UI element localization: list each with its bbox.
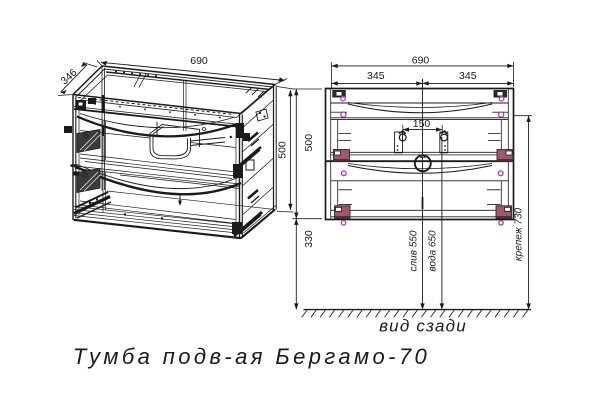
svg-text:345: 345 xyxy=(367,70,385,82)
svg-text:150: 150 xyxy=(413,118,431,130)
svg-text:500: 500 xyxy=(277,141,289,159)
svg-text:345: 345 xyxy=(459,70,477,82)
svg-text:500: 500 xyxy=(303,134,315,152)
svg-text:крепеж 730: крепеж 730 xyxy=(514,207,525,261)
svg-text:690: 690 xyxy=(412,55,430,67)
svg-text:слив 550: слив 550 xyxy=(409,230,420,271)
svg-text:690: 690 xyxy=(190,55,208,67)
svg-text:вода 650: вода 650 xyxy=(428,230,439,272)
svg-text:330: 330 xyxy=(303,230,315,248)
svg-text:вид сзади: вид сзади xyxy=(379,317,467,336)
svg-text:Тумба подв-ая Бергамо-70: Тумба подв-ая Бергамо-70 xyxy=(73,344,430,369)
